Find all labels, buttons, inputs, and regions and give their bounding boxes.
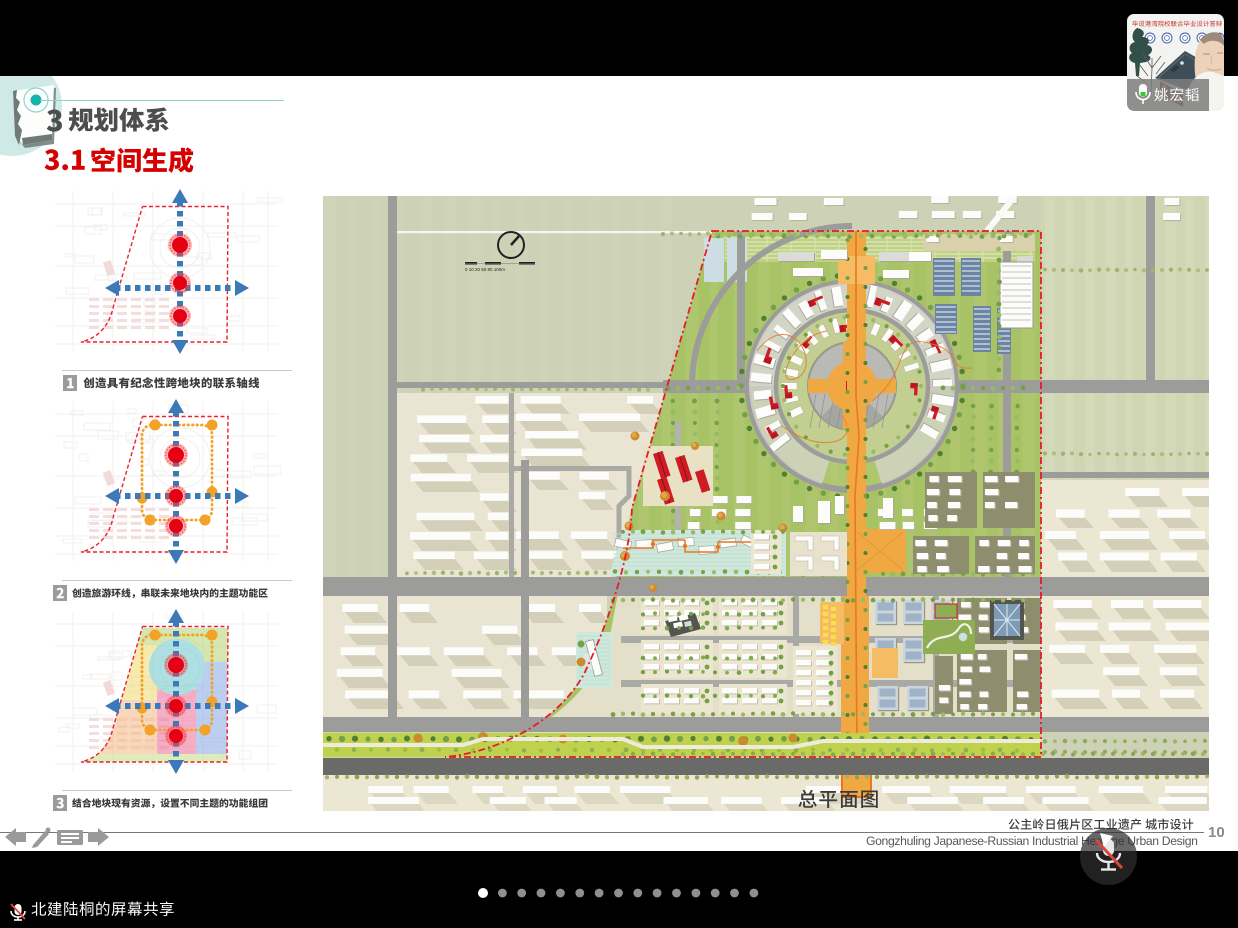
svg-text:0 10 20 50 80 100m: 0 10 20 50 80 100m <box>465 267 505 272</box>
